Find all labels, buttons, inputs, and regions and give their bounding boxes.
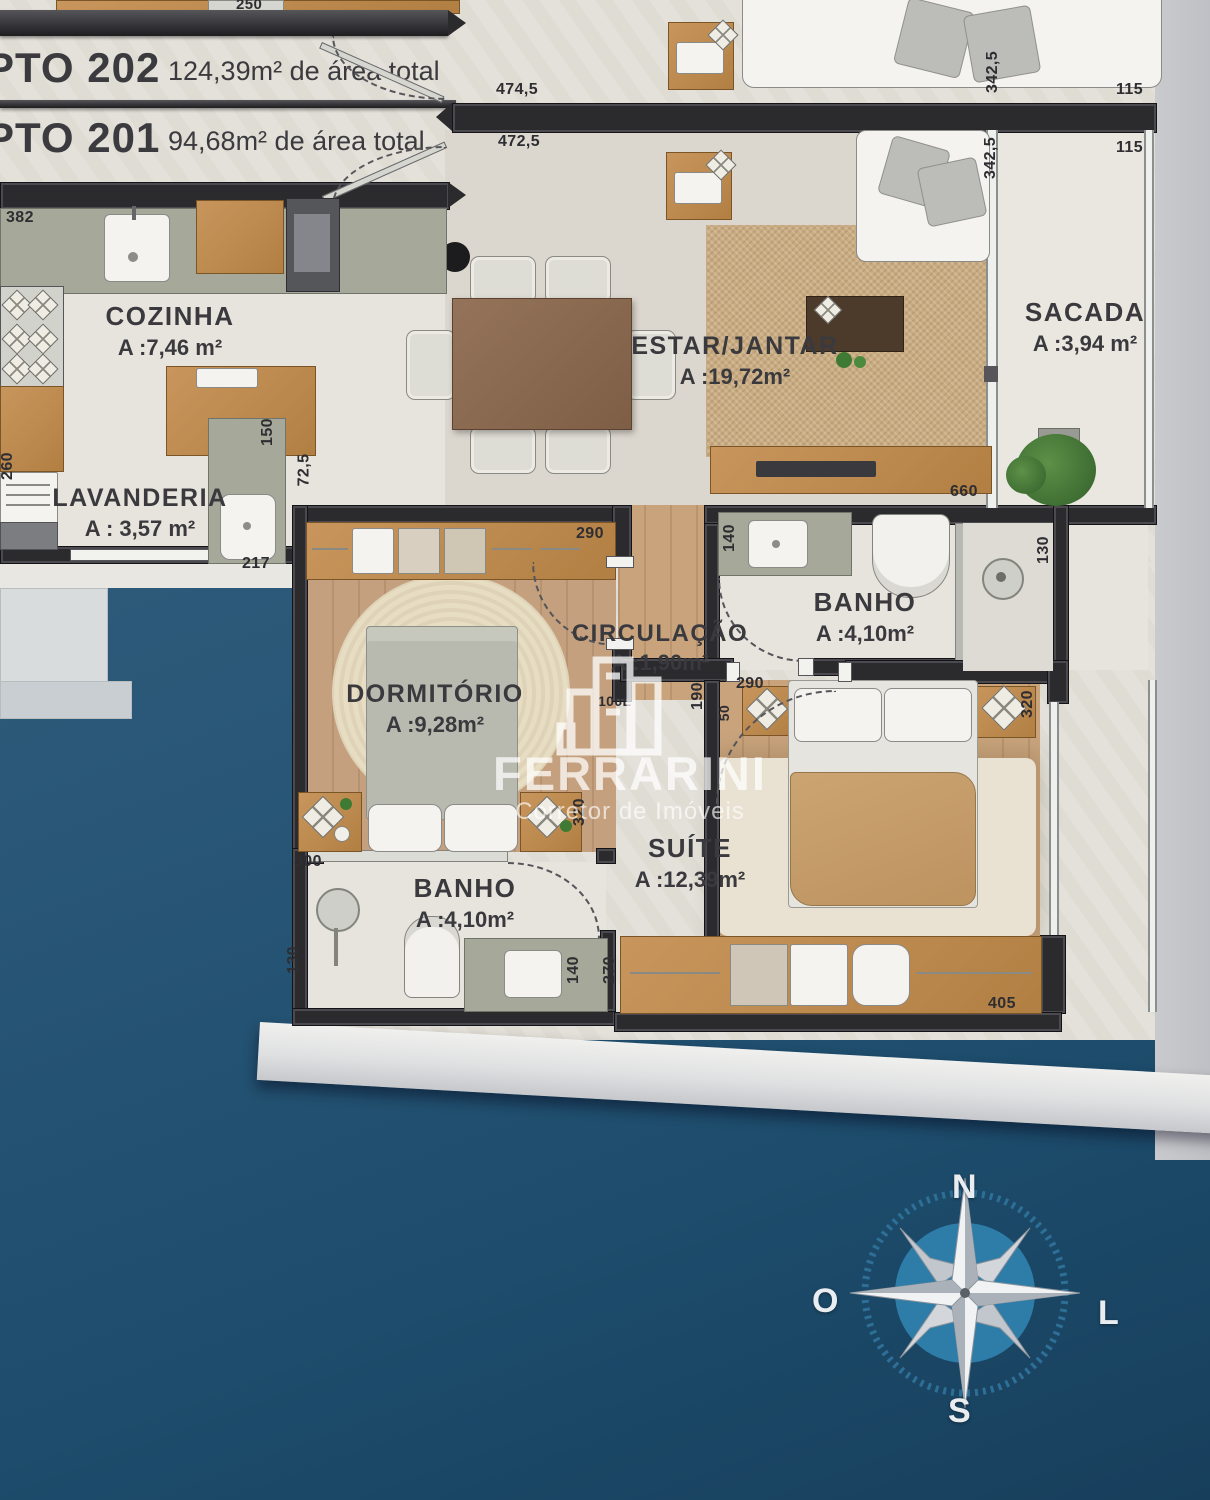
room-name: SUÍTE	[590, 832, 790, 866]
dining-chair-icon	[470, 426, 536, 474]
dining-chair-icon	[406, 330, 456, 400]
dining-chair-icon	[545, 426, 611, 474]
wardrobe-section	[730, 944, 788, 1006]
plant-icon	[340, 798, 352, 810]
bed-pillow-icon	[884, 688, 972, 742]
side-boundary-line	[1148, 680, 1157, 1012]
sofa-pillow-icon	[916, 156, 987, 227]
laptop-icon	[676, 42, 724, 74]
dim-190: 190	[690, 682, 706, 710]
room-label-estar-jantar: ESTAR/JANTAR A :19,72m²	[620, 330, 850, 391]
room-name: CIRCULAÇÃO	[545, 618, 775, 649]
room-name: SACADA	[990, 296, 1180, 330]
room-area: A :4,10m²	[370, 906, 560, 935]
room-label-lavanderia: LAVANDERIA A : 3,57 m²	[30, 482, 250, 543]
room-label-dormitorio: DORMITÓRIO A :9,28m²	[330, 678, 540, 739]
room-name: ESTAR/JANTAR	[620, 330, 850, 363]
decor-dot	[334, 826, 350, 842]
laundry-window	[70, 549, 212, 561]
structural-slab-step	[0, 681, 132, 719]
dim-150: 150	[260, 418, 276, 446]
watermark-brand: FERRARINI	[470, 746, 790, 801]
sofa-pillow-icon	[963, 5, 1042, 84]
bed-pillow-icon	[368, 804, 442, 852]
room-label-banho-inferior: BANHO A :4,10m²	[370, 872, 560, 934]
wardrobe-section	[444, 528, 486, 574]
hanger-rod	[630, 972, 720, 974]
banner-unit-202: PTO 202	[0, 44, 160, 92]
hanger-rod	[540, 548, 580, 550]
dim-342-5-sup: 342,5	[985, 51, 1001, 93]
dim-217: 217	[242, 556, 270, 572]
door-jamb	[606, 556, 634, 568]
party-wall	[452, 103, 1157, 133]
hanger-rod	[916, 972, 1032, 974]
dim-472-5: 472,5	[498, 134, 540, 150]
dim-300: 300	[294, 854, 322, 870]
brochure-page: 250 PTO 202 124,39m² de área total PTO 2…	[0, 0, 1210, 1500]
watermark-tagline: Corretor de Imóveis	[470, 798, 790, 826]
dim-115-sup: 115	[1116, 82, 1143, 98]
dim-405: 405	[988, 996, 1016, 1012]
watermark-logo-icon	[556, 652, 676, 760]
compass-letter-l: L	[1098, 1294, 1119, 1333]
banner-unit-201: PTO 201	[0, 114, 160, 162]
bathroom-lower-left-wall	[292, 848, 308, 1024]
room-name: DORMITÓRIO	[330, 678, 540, 711]
banner-top-band	[0, 10, 448, 36]
structural-slab	[0, 588, 108, 685]
paper-edge-right	[1155, 0, 1210, 1160]
room-area: A : 3,57 m²	[30, 515, 250, 544]
kitchen-faucet-icon	[132, 206, 136, 220]
compass-letter-n: N	[952, 1168, 977, 1207]
wardrobe-section	[852, 944, 910, 1006]
plant-icon	[854, 356, 866, 368]
room-name: LAVANDERIA	[30, 482, 250, 515]
compass-letter-s: S	[948, 1392, 971, 1431]
balcony-door-handle	[984, 366, 998, 382]
dim-banho-inf-140: 140	[566, 956, 582, 984]
suite-bottom-wall	[614, 1012, 1062, 1032]
dim-suite-320: 320	[1020, 690, 1036, 718]
dining-table-icon	[452, 298, 632, 430]
shower-drain-dot	[996, 572, 1006, 582]
dim-342-5-inf: 342,5	[983, 137, 999, 179]
wardrobe-section	[790, 944, 848, 1006]
shower-head-icon	[316, 888, 360, 932]
room-area: A :4,10m²	[770, 620, 960, 649]
room-name: COZINHA	[60, 300, 280, 334]
dining-chair-icon	[470, 256, 536, 304]
bathroom-upper-right-wall	[1053, 505, 1069, 682]
dining-chair-icon	[545, 256, 611, 304]
suite-window	[1049, 702, 1059, 935]
dim-suite-50: 50	[717, 705, 731, 721]
dim-banho-sup-140: 140	[722, 524, 738, 552]
room-label-suite: SUÍTE A :12,39m²	[590, 832, 790, 894]
dim-banho-inf-130: 130	[286, 946, 302, 974]
bathroom-sink-icon	[504, 950, 562, 998]
room-area: A :9,28m²	[330, 711, 540, 740]
dim-dorm-290: 290	[576, 526, 604, 542]
dim-260: 260	[0, 452, 16, 480]
banner-top-band-tip	[448, 10, 466, 36]
dim-115-inf: 115	[1116, 140, 1143, 156]
dim-474-5: 474,5	[496, 82, 538, 98]
counter-top-edge	[196, 368, 258, 388]
door-jamb	[838, 662, 852, 682]
room-name: BANHO	[770, 586, 960, 620]
room-name: BANHO	[370, 872, 560, 906]
party-wall-tip	[436, 103, 452, 131]
room-area: A :12,39m²	[590, 866, 790, 895]
shower-stem	[334, 928, 338, 966]
hanger-rod	[492, 548, 532, 550]
room-label-banho-superior: BANHO A :4,10m²	[770, 586, 960, 648]
room-label-sacada: SACADA A :3,94 m²	[990, 296, 1180, 358]
banner-area-201: 94,68m² de área total	[168, 126, 425, 157]
wardrobe-section	[352, 528, 394, 574]
kitchen-cabinet-icon	[196, 200, 284, 274]
tree-icon	[1006, 456, 1046, 494]
dim-660: 660	[950, 484, 978, 500]
banner-divider-band	[0, 100, 456, 108]
dim-suite-290: 290	[736, 676, 764, 692]
suite-right-wall-bottom	[1040, 935, 1066, 1014]
kitchen-top-wall-tip	[448, 182, 466, 208]
room-area: A :7,46 m²	[60, 334, 280, 363]
dim-banho-sup-130: 130	[1036, 536, 1052, 564]
kitchen-sink-icon	[104, 214, 170, 282]
dim-382: 382	[6, 210, 34, 226]
sink-drain-dot	[128, 252, 138, 262]
tv-icon	[756, 461, 876, 477]
kitchen-oven-door	[294, 214, 330, 272]
compass-letter-o: O	[812, 1282, 838, 1321]
sink-drain-dot	[772, 540, 780, 548]
wardrobe-section	[398, 528, 440, 574]
room-label-cozinha: COZINHA A :7,46 m²	[60, 300, 280, 362]
dim-270: 270	[602, 956, 618, 984]
room-area: A :19,72m²	[620, 363, 850, 392]
laptop-icon	[674, 172, 722, 204]
door-jamb	[798, 658, 814, 676]
room-area: A :3,94 m²	[990, 330, 1180, 359]
dim-72-5: 72,5	[296, 454, 312, 487]
hanger-rod	[312, 548, 348, 550]
